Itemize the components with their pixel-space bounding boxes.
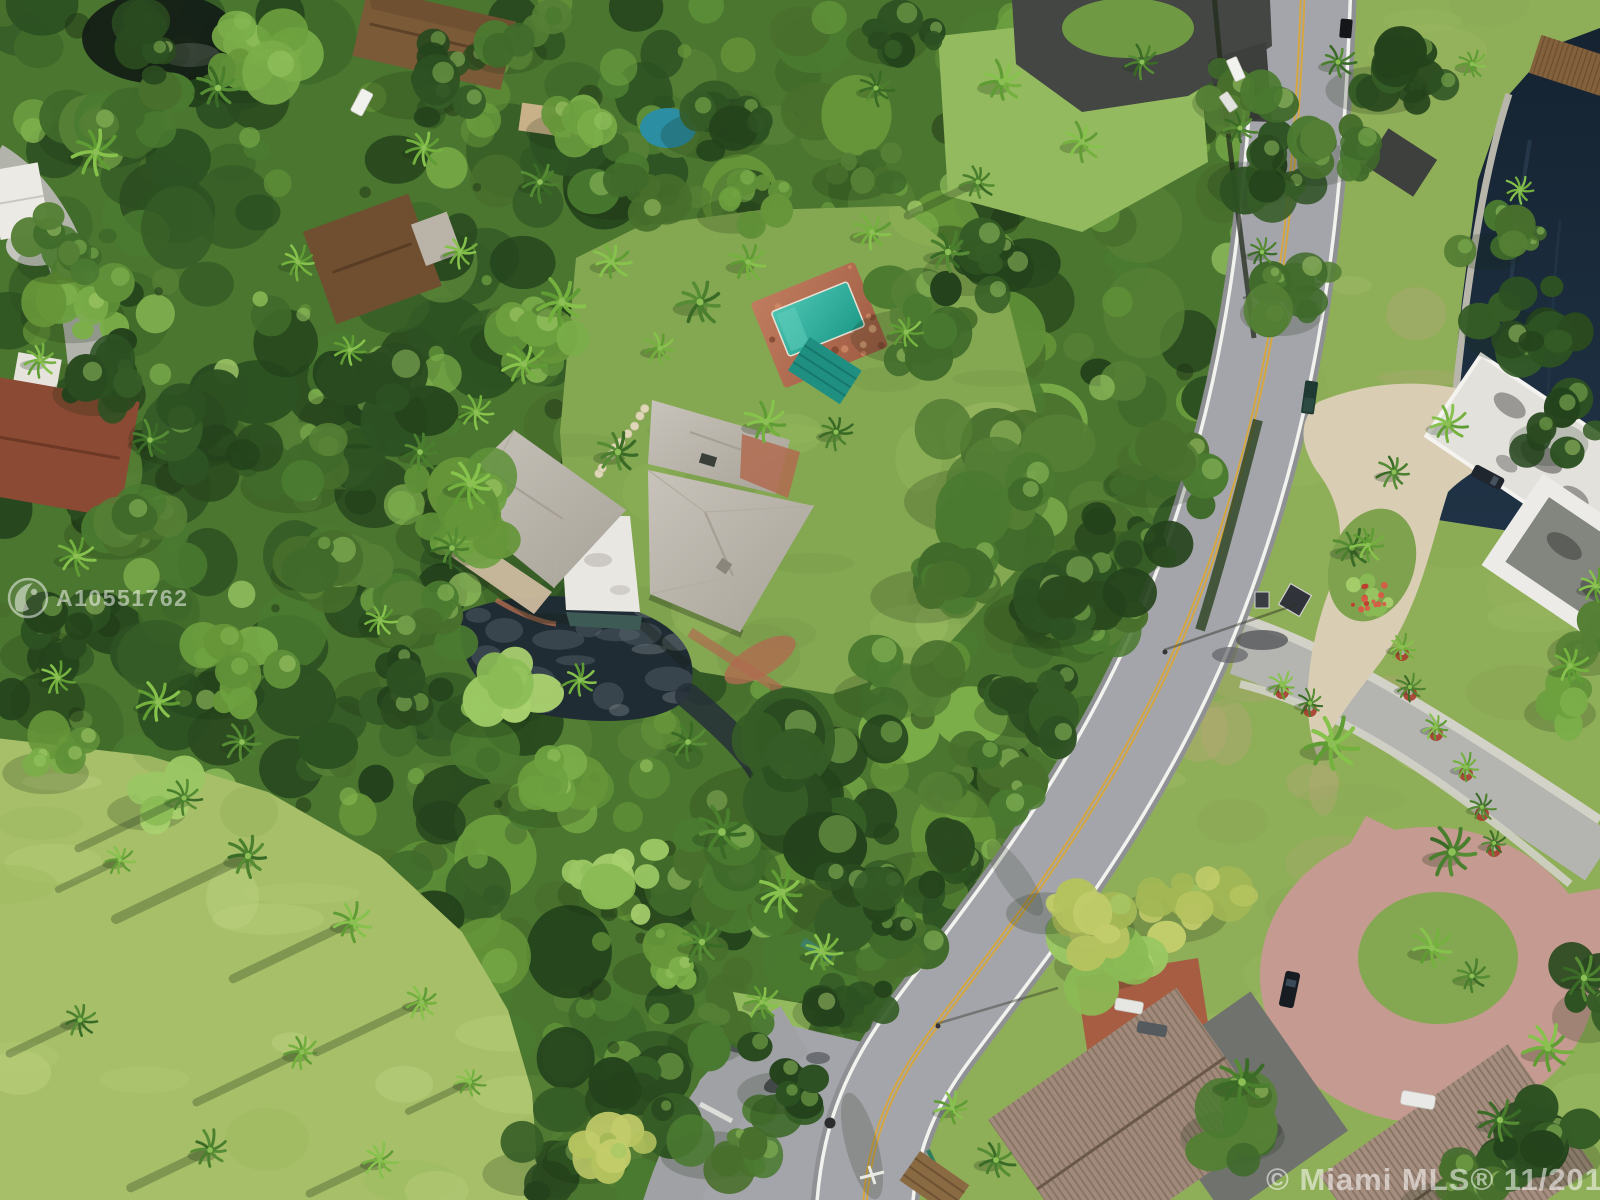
aerial-photo-canvas: A10551762 © Miami MLS® 11/2018 — [0, 0, 1600, 1200]
dark-car-on-road — [1339, 19, 1353, 39]
mls-logo-icon — [9, 579, 47, 617]
tar-patch — [1212, 647, 1248, 663]
utility-pole — [1163, 650, 1168, 655]
storm-drain — [1255, 592, 1269, 608]
utility-pole — [936, 1024, 941, 1029]
tar-patch — [1236, 630, 1288, 650]
watermark-listing-id: A10551762 — [56, 585, 188, 611]
roof-stain — [584, 553, 612, 567]
aerial-photo: A10551762 © Miami MLS® 11/2018 — [0, 0, 1600, 1200]
tar-patch — [806, 1052, 830, 1064]
roof-stain — [610, 585, 630, 595]
watermark-mls-credit: © Miami MLS® 11/2018 — [1266, 1162, 1600, 1197]
manhole — [825, 1118, 836, 1129]
cul-de-sac-island — [1062, 0, 1194, 58]
pink-drive-island — [1358, 892, 1518, 1024]
